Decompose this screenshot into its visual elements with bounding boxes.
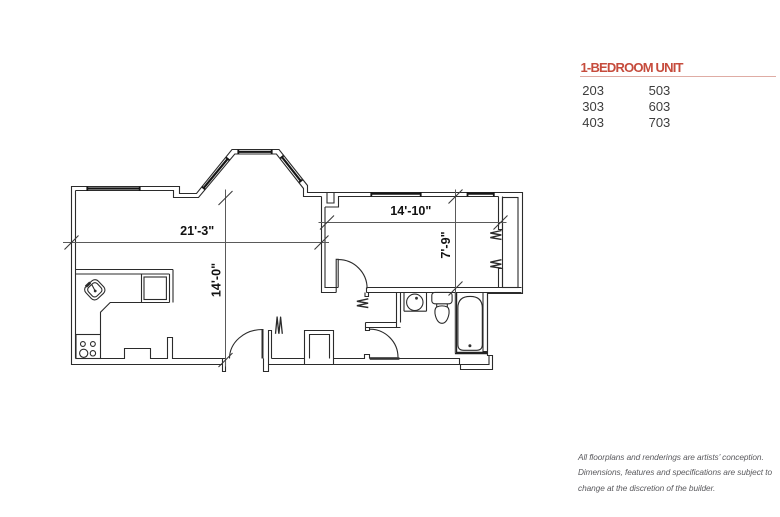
svg-text:7'-9": 7'-9" — [439, 231, 453, 258]
svg-text:14'-0": 14'-0" — [210, 263, 224, 297]
svg-text:14'-10": 14'-10" — [390, 204, 431, 218]
svg-text:21'-3": 21'-3" — [180, 224, 214, 238]
